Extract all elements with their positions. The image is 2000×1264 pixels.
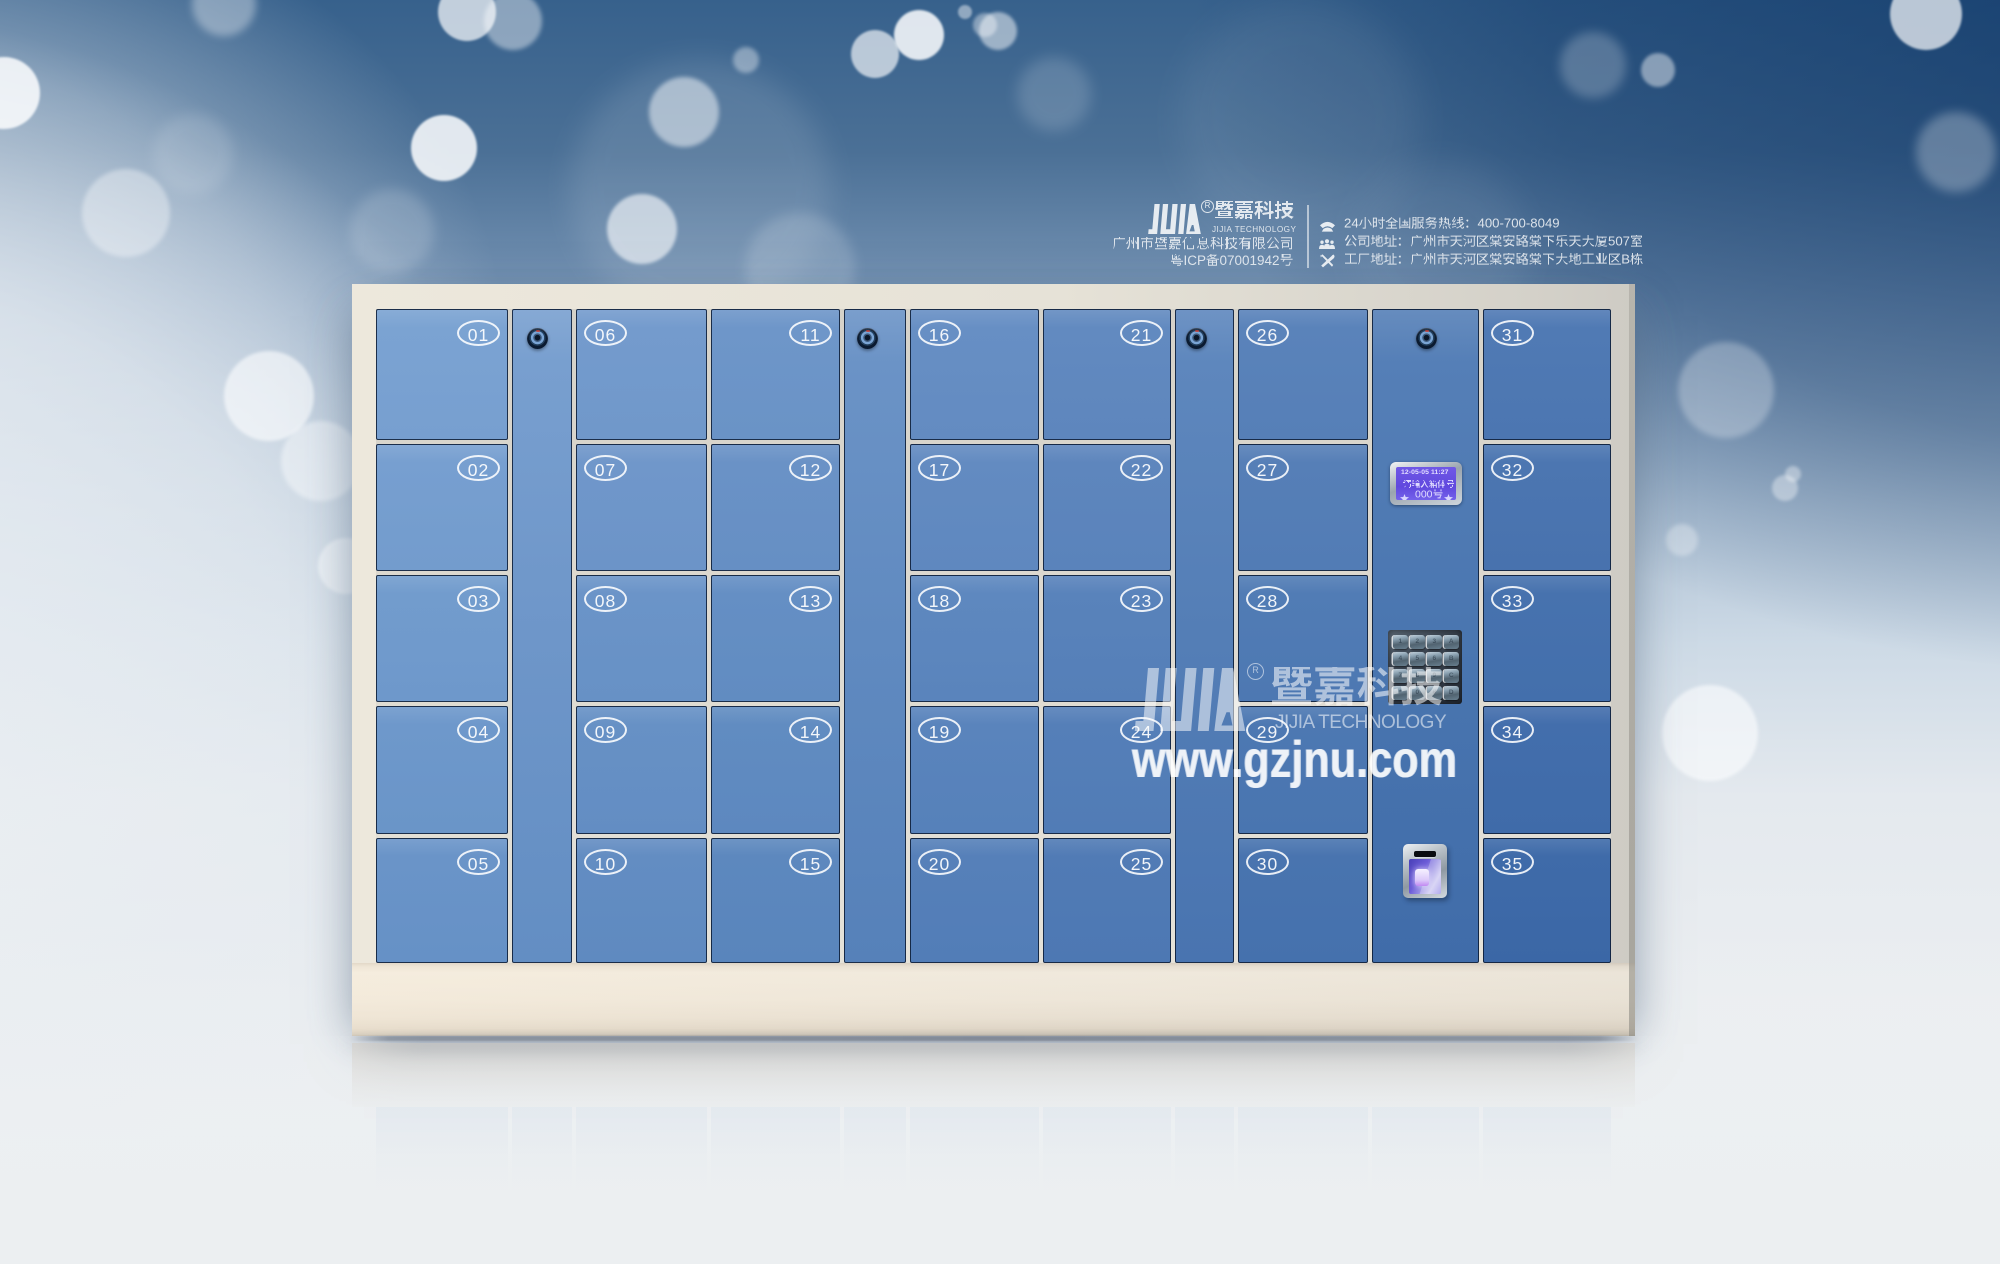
svg-text:07001942: 07001942	[1219, 254, 1279, 268]
svg-text:400-700-8049: 400-700-8049	[1477, 217, 1559, 231]
svg-text:B: B	[1621, 253, 1630, 267]
svg-text:507: 507	[1608, 235, 1630, 249]
svg-text:24: 24	[1344, 217, 1359, 231]
svg-text:000: 000	[1415, 489, 1433, 500]
svg-text:ICP: ICP	[1183, 254, 1205, 268]
